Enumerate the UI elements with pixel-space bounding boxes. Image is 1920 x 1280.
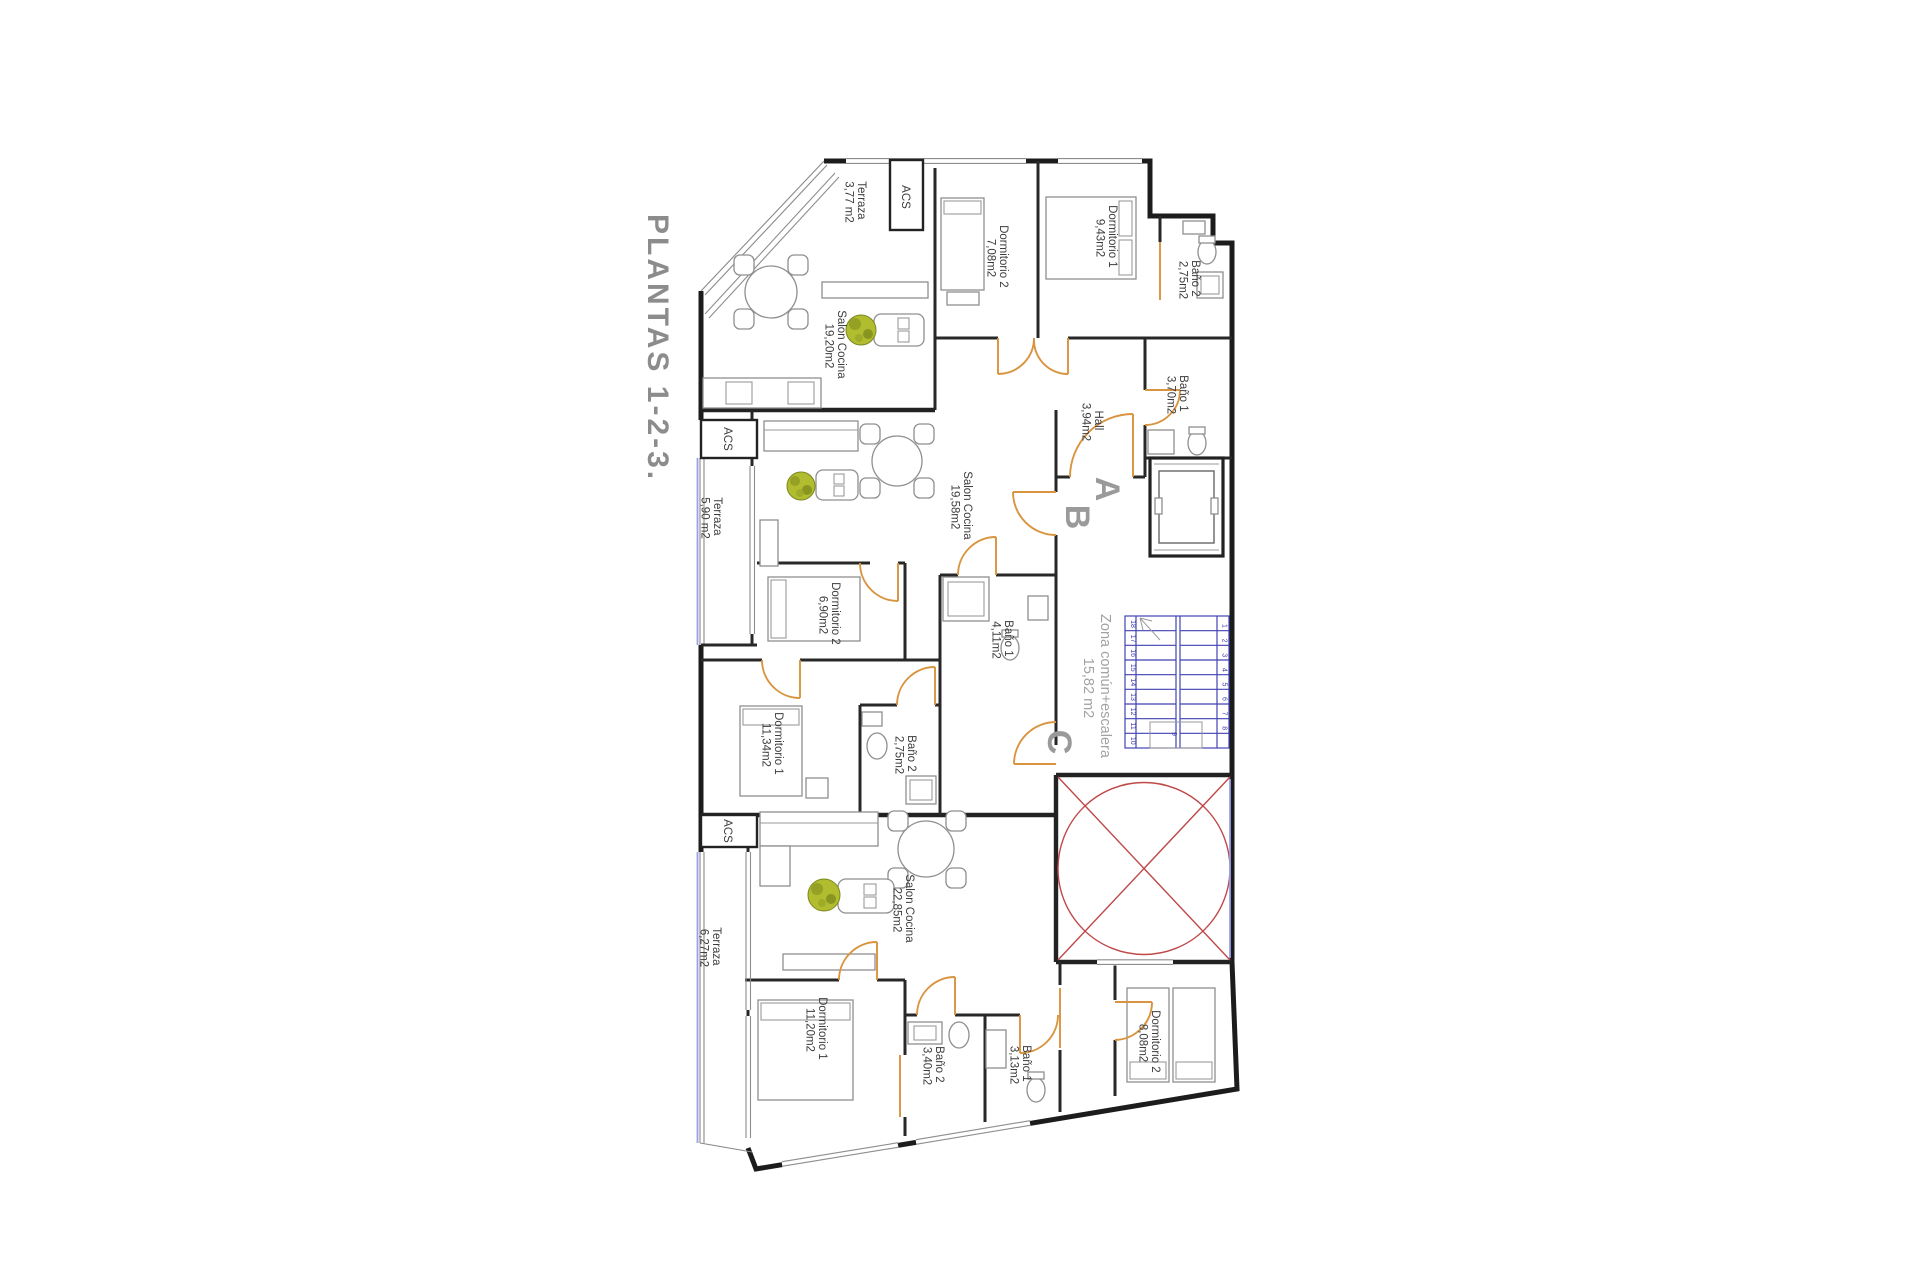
apartment-letter-c: C bbox=[1040, 730, 1078, 755]
stair-number: 2 bbox=[1221, 639, 1228, 643]
shower-bano1-b bbox=[943, 577, 989, 621]
apartment-letter-b: B bbox=[1058, 505, 1096, 530]
toilet-bano2-b bbox=[867, 733, 887, 759]
stair-number: 10 bbox=[1129, 737, 1136, 745]
stair-number: 8 bbox=[1221, 726, 1228, 730]
stair-number: 11 bbox=[1129, 723, 1136, 730]
plan-title: PLANTAS 1-2-3. bbox=[641, 214, 674, 482]
room-label-dormitorio2-a: Dormitorio 2 7,08m2 bbox=[985, 225, 1010, 291]
room-label-hall-a: Hall 3,94m2 bbox=[1080, 403, 1105, 441]
stair-number: 5 bbox=[1221, 682, 1228, 686]
dining-table-b bbox=[872, 436, 922, 486]
bed2-dormitorio2-c bbox=[1173, 988, 1215, 1082]
room-label-bano1-c: Baño 1 3,13m2 bbox=[1008, 1045, 1033, 1085]
stair-number: 7 bbox=[1221, 712, 1228, 716]
stair-number: 15 bbox=[1129, 664, 1136, 672]
room-label-bano2-a: Baño 2 2,75m2 bbox=[1177, 260, 1202, 300]
dining-table-a bbox=[745, 266, 797, 318]
sideboard-a bbox=[822, 282, 928, 298]
sofa-c bbox=[760, 812, 878, 846]
sink-bano2-c bbox=[908, 1022, 942, 1044]
tv-unit-c bbox=[783, 954, 875, 970]
room-label-salon-b: Salon Cocina 19,58m2 bbox=[949, 471, 974, 543]
room-label-bano2-b: Baño 2 2,75m2 bbox=[893, 735, 918, 775]
stair-number: 16 bbox=[1129, 649, 1136, 657]
acs-label-b: ACS bbox=[721, 427, 733, 451]
room-label-salon-a: Salon Cocina 19,20m2 bbox=[823, 310, 848, 382]
elevator bbox=[1150, 458, 1223, 556]
room-label-bano2-c: Baño 2 3,40m2 bbox=[921, 1046, 946, 1086]
floor-plan-svg: 181716151413121110123456789 bbox=[0, 0, 1920, 1280]
apartment-letter-a: A bbox=[1088, 477, 1126, 502]
furniture-apartment-a bbox=[703, 197, 1223, 455]
bed-dormitorio1-a bbox=[1046, 197, 1136, 279]
plant-icon bbox=[808, 879, 840, 911]
stair-number: 17 bbox=[1129, 635, 1136, 643]
plant-icon bbox=[846, 315, 876, 345]
plant-icon bbox=[787, 472, 815, 500]
sink-bano2-a bbox=[1183, 221, 1205, 234]
stair-number: 1 bbox=[1221, 624, 1228, 628]
shower-bano1-c bbox=[986, 1030, 1006, 1068]
stair-number: 4 bbox=[1221, 668, 1228, 672]
sink-bano1-a bbox=[1148, 430, 1174, 454]
sink-bano1-b bbox=[1028, 596, 1048, 620]
stair-number: 3 bbox=[1221, 653, 1228, 657]
stair-number: 9 bbox=[1170, 732, 1177, 736]
bed-dormitorio2-b bbox=[768, 577, 860, 641]
toilet-bano2-c bbox=[949, 1022, 969, 1048]
floor-plan-page: 181716151413121110123456789 bbox=[0, 0, 1920, 1280]
stair-number: 18 bbox=[1129, 620, 1136, 628]
doors bbox=[762, 242, 1180, 1117]
stair-number: 14 bbox=[1129, 679, 1136, 687]
room-label-bano1-a: Baño 1 3,70m2 bbox=[1165, 375, 1190, 415]
acs-label-c: ACS bbox=[721, 819, 733, 843]
room-label-terraza-c: Terraza 6,27m2 bbox=[698, 927, 723, 969]
tv-unit-b bbox=[760, 520, 778, 566]
stair-numbers: 181716151413121110123456789 bbox=[1129, 620, 1228, 745]
stair-number: 13 bbox=[1129, 693, 1136, 701]
acs-label-a: ACS bbox=[899, 185, 911, 209]
bed-dormitorio2-a bbox=[941, 198, 984, 290]
sink-bano2-b bbox=[862, 712, 882, 726]
courtyard-void bbox=[1058, 777, 1230, 960]
room-label-bano1-b: Baño 1 4,11m2 bbox=[990, 620, 1015, 660]
room-label-terraza-a: Terraza 3,77 m2 bbox=[843, 181, 868, 223]
stairs: 181716151413121110123456789 bbox=[1125, 616, 1229, 748]
stair-number: 12 bbox=[1129, 708, 1136, 716]
kitchen-island-a bbox=[874, 314, 924, 346]
stair-number: 6 bbox=[1221, 697, 1228, 701]
zona-comun-label: Zona común+escalera 15,82 m2 bbox=[1080, 614, 1113, 762]
sofa-b bbox=[764, 421, 858, 451]
room-label-terraza-b: Terraza 5,90 m2 bbox=[699, 497, 724, 539]
